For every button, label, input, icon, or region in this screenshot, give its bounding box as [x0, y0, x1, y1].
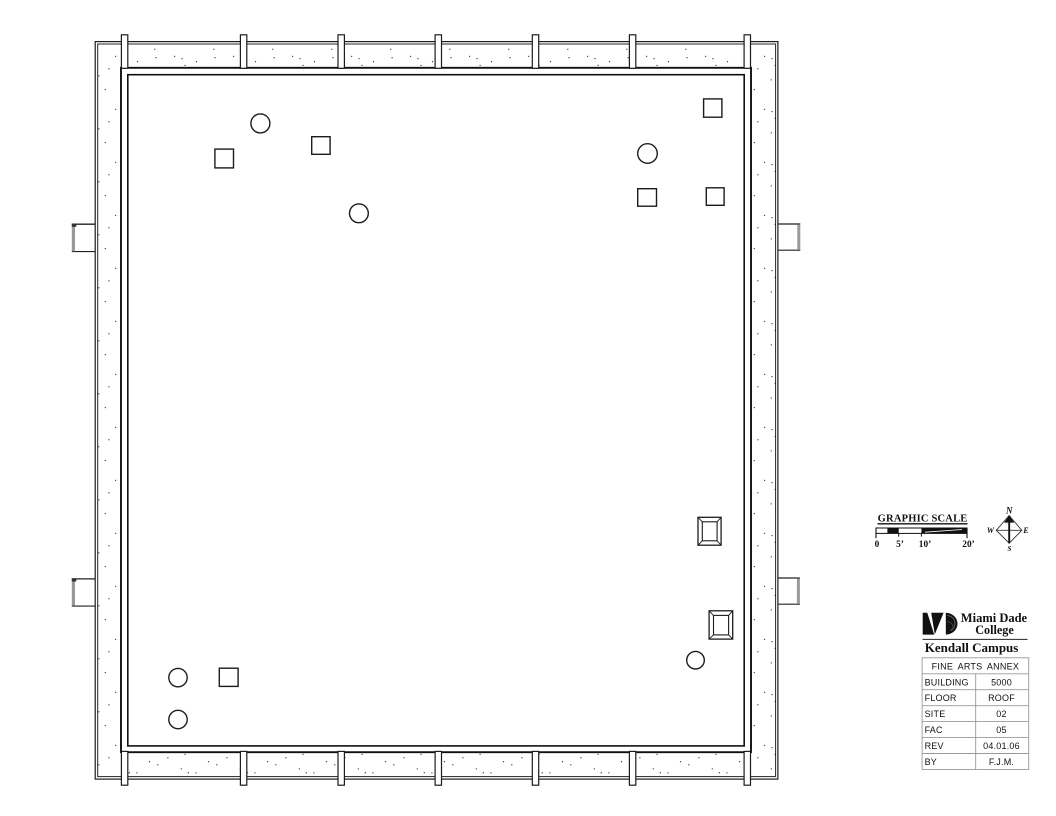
svg-text:5000: 5000 — [991, 677, 1012, 687]
svg-text:5’: 5’ — [896, 540, 904, 550]
svg-text:20’: 20’ — [962, 540, 974, 550]
svg-text:05: 05 — [996, 725, 1006, 735]
svg-text:S: S — [1007, 545, 1011, 553]
svg-text:REV: REV — [925, 741, 944, 751]
svg-text:E: E — [1022, 526, 1028, 535]
svg-text:0: 0 — [875, 540, 880, 550]
svg-text:10’: 10’ — [919, 540, 931, 550]
svg-text:College: College — [975, 623, 1014, 637]
svg-text:04.01.06: 04.01.06 — [983, 741, 1020, 751]
svg-text:BY: BY — [925, 757, 937, 767]
svg-text:SITE: SITE — [925, 709, 946, 719]
svg-text:GRAPHIC SCALE: GRAPHIC SCALE — [878, 514, 968, 525]
svg-text:FLOOR: FLOOR — [925, 693, 957, 703]
svg-text:N: N — [1005, 505, 1013, 515]
svg-text:F.J.M.: F.J.M. — [989, 757, 1014, 767]
svg-text:BUILDING: BUILDING — [925, 677, 969, 687]
svg-text:FAC: FAC — [925, 725, 943, 735]
svg-text:W: W — [987, 526, 995, 535]
svg-text:Kendall Campus: Kendall Campus — [925, 640, 1019, 655]
svg-text:FINE ARTS ANNEX: FINE ARTS ANNEX — [932, 661, 1020, 671]
svg-text:ROOF: ROOF — [988, 693, 1015, 703]
svg-text:02: 02 — [996, 709, 1006, 719]
